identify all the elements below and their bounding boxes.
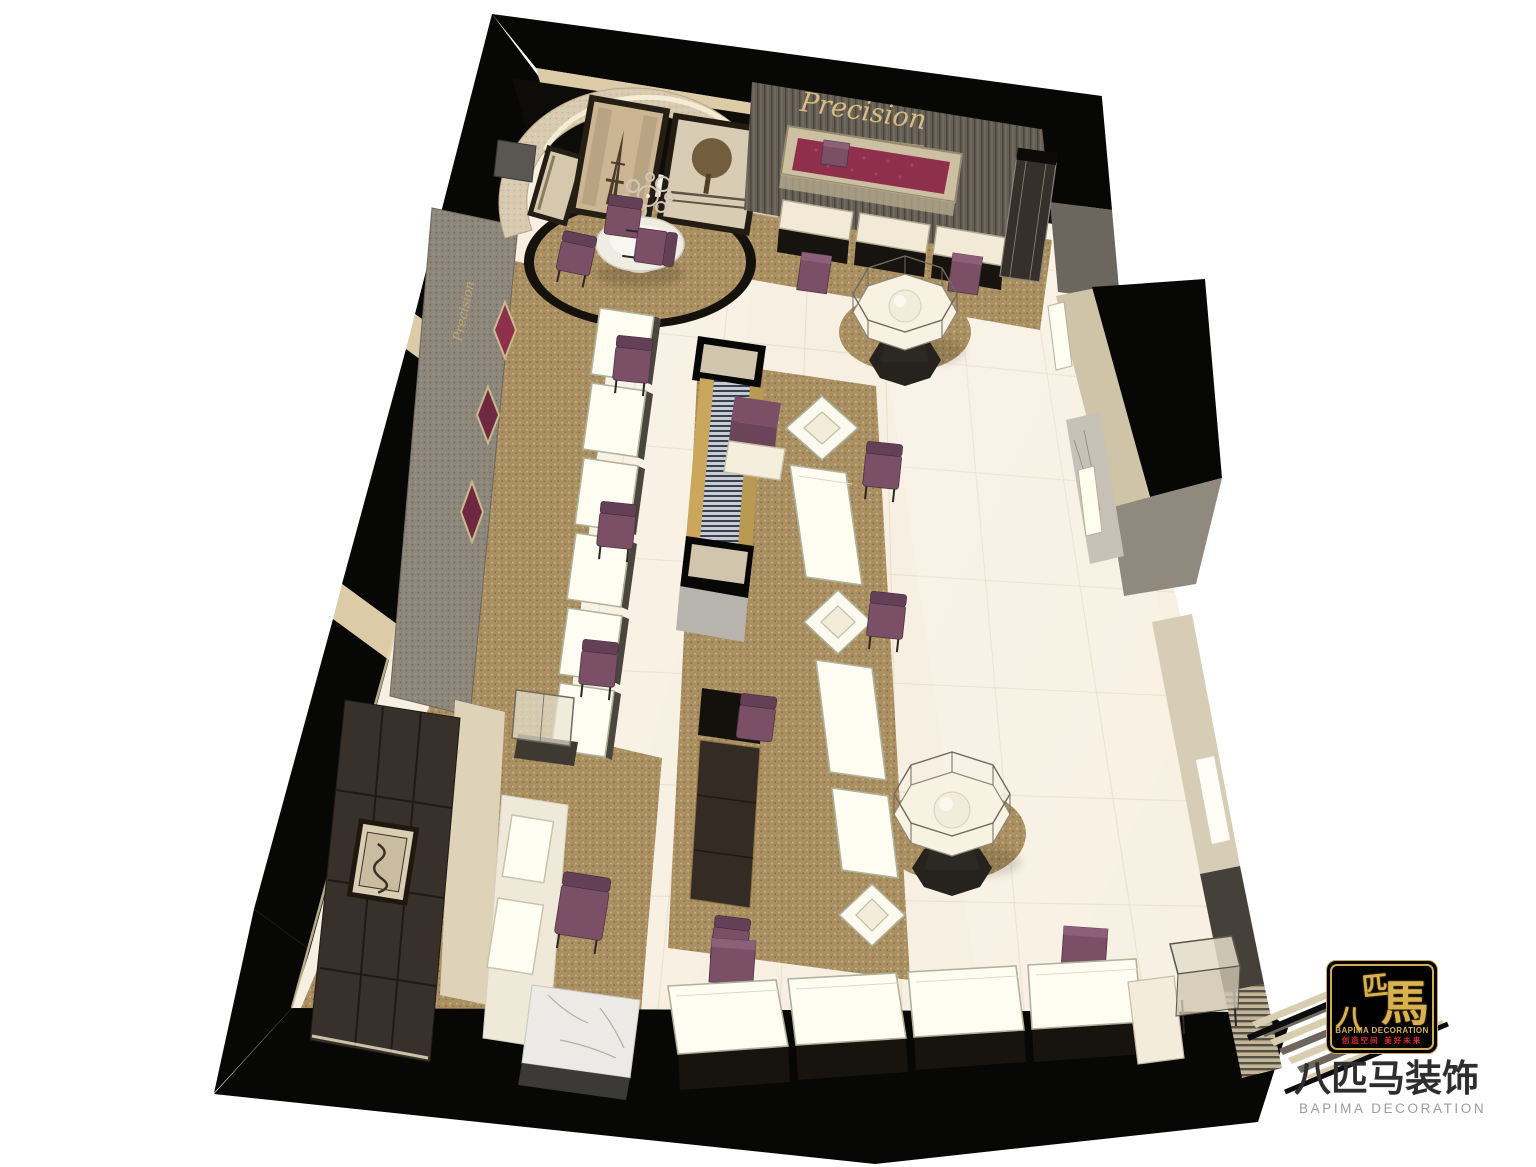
lit-display-counter	[668, 980, 788, 1054]
lit-bench-cushion	[487, 898, 543, 974]
render-canvas: Precision	[0, 0, 1536, 1167]
armchair	[736, 693, 777, 742]
display-stool	[709, 938, 756, 985]
display-dome	[889, 290, 921, 322]
tall-glass-showcase	[512, 690, 578, 766]
pillar-face	[1050, 202, 1120, 300]
bapima-logo-badge: 匹 馬 八 BAPIMA DECORATION 创造空间 美好未来	[1326, 960, 1438, 1054]
display-stool	[821, 140, 850, 167]
logo-inner-frame: 匹 馬 八 BAPIMA DECORATION 创造空间 美好未来	[1330, 964, 1434, 1050]
lit-bench-cushion	[502, 815, 553, 883]
wall-return-slab	[494, 140, 536, 182]
white-counter	[1128, 976, 1184, 1064]
display-stool	[797, 252, 832, 294]
showcase-vitrine	[583, 383, 646, 457]
logo-calligraphy-char: 馬	[1381, 964, 1429, 1034]
dome-highlight	[939, 797, 953, 811]
island-counter	[832, 788, 898, 878]
dome-highlight	[894, 295, 906, 307]
logo-company-name: BAPIMA DECORATION	[1332, 1026, 1432, 1035]
logo-tagline: 创造空间 美好未来	[1332, 1035, 1432, 1046]
marble-counter	[522, 985, 640, 1078]
display-dome	[934, 792, 970, 828]
store-rendering: Precision	[0, 0, 1536, 1167]
pillar-display-body	[690, 740, 760, 908]
cabinet-emblem-frame	[350, 821, 417, 903]
display-stool	[948, 253, 983, 295]
